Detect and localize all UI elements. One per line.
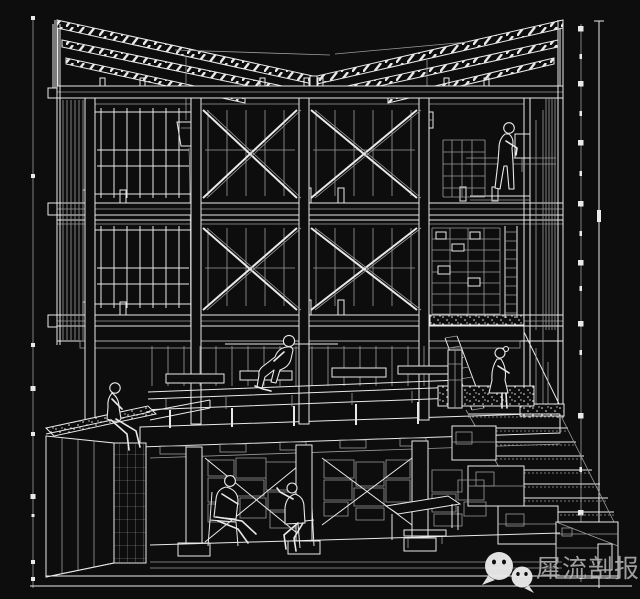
- watermark: 犀流剖报: [482, 552, 640, 593]
- dimension-line-left: [31, 16, 36, 588]
- dimension-line-right: [578, 21, 604, 588]
- wechat-icon: [482, 552, 534, 593]
- person-standing-upper-floor: [495, 123, 530, 189]
- person-seated-basement-left: [208, 476, 256, 546]
- building-section-drawing: 犀流剖报: [0, 0, 640, 599]
- window-mullions: [95, 108, 424, 386]
- screenshot-canvas: 犀流剖报: [0, 0, 640, 599]
- watermark-text: 犀流剖报: [536, 554, 640, 583]
- ladder-vertical: [505, 226, 517, 318]
- exterior-stair: [438, 350, 618, 578]
